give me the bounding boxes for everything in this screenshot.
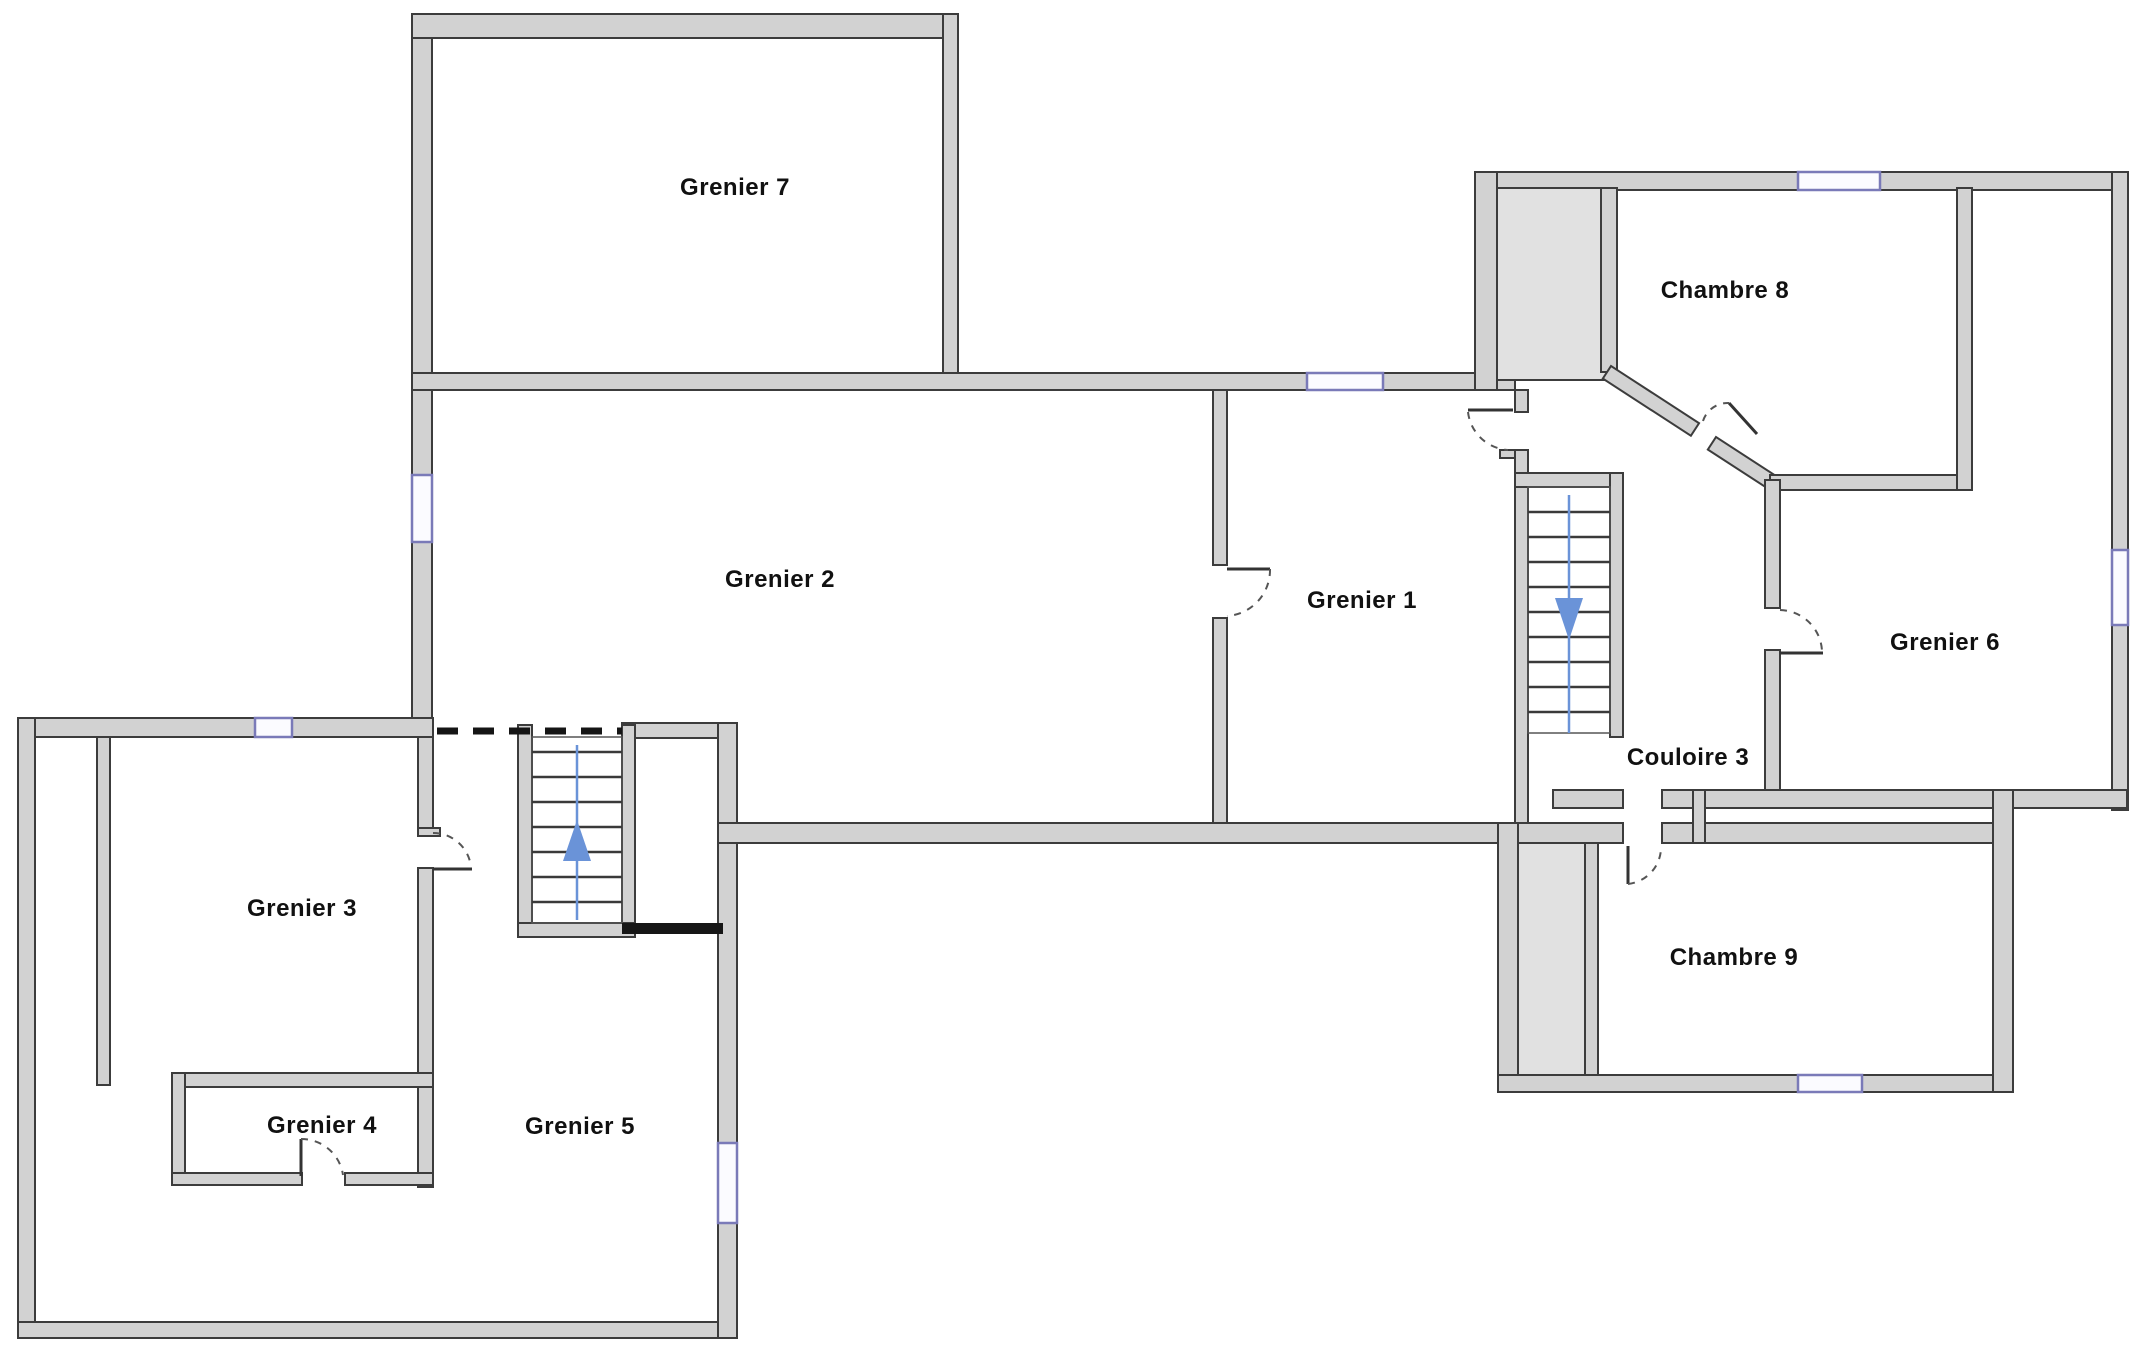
wall-segment [943, 14, 958, 390]
wall-segment [1662, 823, 2013, 843]
wall-segment [1603, 366, 1699, 436]
floor-plan: Grenier 7 Grenier 2 Grenier 1 Chambre 8 … [0, 0, 2150, 1362]
wall-segment [518, 923, 635, 937]
wall-segment [412, 14, 958, 38]
windows [255, 172, 2128, 1223]
door-arc-chambre9 [1628, 846, 1661, 884]
window-chambre8-north [1798, 172, 1880, 190]
wall-segment [718, 1223, 737, 1338]
wall-segment [1515, 390, 1528, 412]
wall-segment [1693, 790, 1705, 843]
door-arc-grenier3 [433, 833, 471, 867]
room-label-grenier2: Grenier 2 [725, 566, 835, 594]
wall-segment [1213, 618, 1227, 823]
wall-segment [18, 1322, 737, 1338]
wall-segment [1662, 790, 2127, 808]
wall-segment [97, 737, 110, 1085]
shaft-area [1497, 188, 1615, 380]
wall-segment [622, 725, 635, 937]
wall-segment [718, 823, 1623, 843]
room-label-chambre8: Chambre 8 [1661, 277, 1790, 305]
room-label-grenier7: Grenier 7 [680, 174, 790, 202]
window-grenier2-west [412, 475, 432, 542]
room-label-grenier1: Grenier 1 [1307, 587, 1417, 615]
wall-segment [1515, 450, 1528, 823]
window-chambre9-south [1798, 1075, 1862, 1092]
window-grenier3-north [255, 718, 292, 737]
wall-segment [292, 718, 433, 737]
room-label-grenier6: Grenier 6 [1890, 629, 2000, 657]
wall-segment [1213, 390, 1227, 565]
door-leaf-chambre8 [1729, 403, 1757, 434]
window-grenier6-east [2112, 550, 2128, 625]
floor-plan-drawing [0, 0, 2150, 1362]
stairs-down-arrow-icon [1555, 598, 1583, 640]
wall-segment [172, 1073, 433, 1087]
wall-segment [1765, 650, 1780, 790]
wall-segment [412, 542, 432, 737]
wall-segment [1957, 188, 1972, 490]
door-arc-grenier4 [301, 1139, 343, 1175]
staircase-right [1515, 450, 1623, 823]
wall-segment [622, 723, 733, 738]
wall-segment [345, 1173, 433, 1185]
staircase-left [437, 725, 723, 937]
wall-segment [1880, 172, 2127, 190]
wall-segment [518, 725, 532, 937]
door-arc-couloire3-north [1468, 412, 1508, 450]
door-arc-chambre8 [1703, 403, 1729, 421]
window-grenier1-north [1307, 373, 1383, 390]
room-label-grenier4: Grenier 4 [267, 1112, 377, 1140]
door-arc-grenier1 [1227, 569, 1270, 616]
wall-segment [1553, 790, 1623, 808]
walls-centre [622, 723, 2013, 1338]
wall-segment [718, 723, 737, 823]
walls-top-left-block [412, 14, 1515, 823]
wall-segment [1475, 172, 1497, 390]
wall-segment [1585, 843, 1598, 1075]
wall-segment [172, 1173, 302, 1185]
room-label-grenier3: Grenier 3 [247, 895, 357, 923]
wall-segment [418, 828, 440, 836]
wall-segment [18, 718, 255, 737]
closet-threshold-bar [622, 923, 723, 934]
room-label-chambre9: Chambre 9 [1670, 944, 1799, 972]
wall-segment [1601, 188, 1617, 372]
room-label-grenier5: Grenier 5 [525, 1113, 635, 1141]
wall-segment [1993, 790, 2013, 1092]
wall-segment [2112, 172, 2128, 550]
wall-segment [1610, 473, 1623, 737]
wall-segment [418, 737, 433, 828]
wall-segment [172, 1073, 185, 1185]
wall-segment [18, 718, 35, 1338]
wall-segment [1498, 1075, 1798, 1092]
wall-segment [1515, 473, 1623, 487]
walls-top-right-block [1475, 172, 2128, 843]
window-grenier5-east [718, 1143, 737, 1223]
wall-segment [1862, 1075, 2013, 1092]
wall-segment [418, 868, 433, 1187]
wall-segment [412, 14, 432, 475]
wall-segment [412, 373, 1307, 390]
wall-segment [1765, 480, 1780, 608]
room-label-couloire3: Couloire 3 [1627, 744, 1749, 772]
wall-segment [1770, 475, 1972, 490]
door-arc-grenier6 [1780, 610, 1822, 651]
wall-segment [718, 843, 737, 1143]
shaft-area [1518, 843, 1585, 1075]
wall-segment [2112, 625, 2128, 810]
wall-segment [1498, 823, 1518, 1092]
